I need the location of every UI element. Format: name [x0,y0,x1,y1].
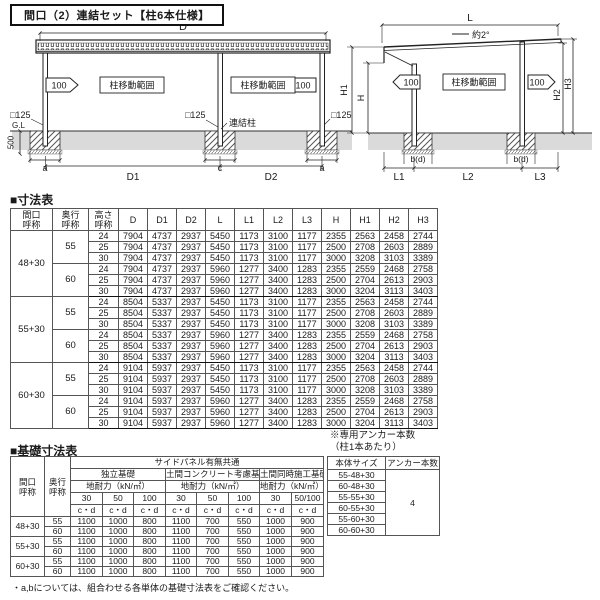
slope-label: 約2° [472,29,490,40]
dim-table-row: 48+3055247904473729375450117331001177235… [11,231,438,242]
dim-l2-label: L2 [462,172,474,183]
dim-value-cell: 3103 [380,253,409,264]
footing-dim-label: b(d) [410,154,425,164]
dim-l-label: L [467,13,473,24]
dim-value-cell: 7904 [119,231,148,242]
dim-value-cell: 2468 [380,396,409,407]
base-value-cell: 700 [197,567,229,577]
dim-value-cell: 7904 [119,253,148,264]
dim-value-cell: 3100 [264,231,293,242]
dimension-table: 間口 呼称 奥行 呼称 高さ 呼称 D D1 D2 L L1 L2 L3 H H… [10,208,438,429]
dim-value-cell: 25 [89,242,119,253]
dim-value-cell: 1177 [293,374,322,385]
joint-post-label: 連結柱 [229,117,256,128]
footing-dim-label: b(d) [513,154,528,164]
post-range-arrow-side-left: 100 [393,75,420,89]
dim-value-cell: 1173 [235,385,264,396]
base-value-cell: 900 [292,567,324,577]
base-value-cell: 1000 [260,547,292,557]
dim-value-cell: 25 [89,407,119,418]
dim-value-cell: 2613 [380,275,409,286]
anchor-table-row: 55-48+304 [328,470,440,481]
dim-value-cell: 3100 [264,253,293,264]
base-value-cell: 1100 [166,557,197,567]
dim-value-cell: 2500 [322,275,351,286]
base-value-cell: 1100 [71,537,103,547]
base-value-cell: 900 [292,527,324,537]
post-range-arrow-side-right: 100 [528,75,555,89]
roof-front [36,40,330,53]
dim-value-cell: 2468 [380,264,409,275]
base-value-cell: 1100 [71,567,103,577]
col-header: H3 [409,209,438,231]
dim-value-cell: 3400 [264,396,293,407]
roof-slope-callout: 約2° [452,29,490,40]
post-size-right: □125 [331,110,351,120]
col-header: 土間コンクリート考慮基礎 [166,469,260,481]
base-value-cell: 900 [292,547,324,557]
col-header: 独立基礎 [71,469,166,481]
col-header: L2 [264,209,293,231]
body-size-cell: 60-60+30 [328,525,386,536]
dim-h1-label: H1 [339,84,349,96]
dim-value-cell: 2903 [409,341,438,352]
dim-value-cell: 2468 [380,330,409,341]
cd-header: c・d [260,505,292,517]
okuyuki-cell: 55 [53,363,89,396]
dim-value-cell: 2744 [409,297,438,308]
okuyuki-cell: 60 [45,527,71,537]
dim-value-cell: 5937 [148,374,177,385]
okuyuki-cell: 55 [45,557,71,567]
dim-value-cell: 2758 [409,396,438,407]
footnote: ・a,bについては、組合わせる各単体の基礎寸法表をご確認ください。 [12,581,294,594]
dim-value-cell: 1177 [293,363,322,374]
col-header: H2 [380,209,409,231]
dim-l: L [382,13,558,43]
dim-value-cell: 1283 [293,418,322,429]
footing-base-left [28,150,62,154]
dim-value-cell: 4737 [148,264,177,275]
dim-value-cell: 5337 [148,319,177,330]
dim-value-cell: 4737 [148,242,177,253]
dim-value-cell: 2937 [177,242,206,253]
dim-value-cell: 1277 [235,396,264,407]
dim-value-cell: 30 [89,319,119,330]
base-value-cell: 800 [134,527,166,537]
dim-value-cell: 2603 [380,242,409,253]
base-value-cell: 700 [197,517,229,527]
dim-value-cell: 2559 [351,396,380,407]
dim-value-cell: 5960 [206,275,235,286]
dim-value-cell: 5450 [206,385,235,396]
dim-value-cell: 3000 [322,352,351,363]
col-header: 本体サイズ [328,457,386,470]
base-value-cell: 1000 [103,517,134,527]
col-header: 30 [260,493,292,505]
dim-h1: H1 [339,47,384,133]
dim-value-cell: 24 [89,231,119,242]
dim-value-cell: 2937 [177,275,206,286]
dim-value-cell: 3403 [409,286,438,297]
dim-table-section-title: ■寸法表 [10,191,53,208]
dim-value-cell: 3400 [264,352,293,363]
dim-value-cell: 8504 [119,341,148,352]
okuyuki-cell: 60 [45,567,71,577]
dim-value-cell: 9104 [119,396,148,407]
dim-value-cell: 2500 [322,341,351,352]
col-header: 50 [103,493,134,505]
footing-dim-label: a [42,163,47,173]
dim-value-cell: 5337 [148,352,177,363]
page-title: 間口（2）連結セット【柱6本仕様】 [10,4,224,26]
dim-value-cell: 3000 [322,253,351,264]
dim-value-cell: 5337 [148,297,177,308]
dim-value-cell: 4737 [148,253,177,264]
dim-h3-label: H3 [563,78,573,90]
dim-value-cell: 2563 [351,363,380,374]
range-label: 柱移動範囲 [109,80,154,91]
base-value-cell: 1000 [103,527,134,537]
dim-value-cell: 3000 [322,418,351,429]
arrow-label: 100 [529,78,544,88]
cd-header: c・d [229,505,260,517]
body-size-cell: 55-60+30 [328,514,386,525]
dim-value-cell: 2758 [409,264,438,275]
dim-value-cell: 2355 [322,396,351,407]
dim-value-cell: 3103 [380,385,409,396]
dim-value-cell: 3100 [264,319,293,330]
base-value-cell: 700 [197,557,229,567]
col-header: D [119,209,148,231]
dim-value-cell: 9104 [119,385,148,396]
dim-value-cell: 1173 [235,242,264,253]
dim-table-row: 55+3055248504533729375450117331001177235… [11,297,438,308]
dim-value-cell: 1173 [235,253,264,264]
dim-value-cell: 2704 [351,341,380,352]
dim-value-cell: 3400 [264,286,293,297]
base-value-cell: 700 [197,547,229,557]
dim-value-cell: 5450 [206,242,235,253]
dim-value-cell: 30 [89,418,119,429]
dim-value-cell: 2458 [380,363,409,374]
base-table-row: 601100100080011007005501000900 [11,527,324,537]
dim-value-cell: 1283 [293,396,322,407]
post-size-labels-front: □125 □125 □125 [10,110,351,127]
dim-value-cell: 3113 [380,286,409,297]
maguchi-cell: 60+30 [11,557,45,577]
post-front-left [43,53,48,146]
dim-l1-label: L1 [393,172,405,183]
dim-value-cell: 5937 [148,418,177,429]
dim-h: H [356,63,384,133]
okuyuki-cell: 55 [53,297,89,330]
dim-value-cell: 3103 [380,319,409,330]
dim-value-cell: 1173 [235,374,264,385]
range-box-front-right: 柱移動範囲 [231,77,295,93]
dim-value-cell: 3389 [409,319,438,330]
dim-value-cell: 8504 [119,308,148,319]
dim-value-cell: 1277 [235,286,264,297]
dim-value-cell: 9104 [119,374,148,385]
dim-value-cell: 1283 [293,264,322,275]
col-header: H1 [351,209,380,231]
range-label: 柱移動範囲 [451,77,496,88]
dim-value-cell: 9104 [119,363,148,374]
body-size-cell: 60-48+30 [328,481,386,492]
dim-value-cell: 2744 [409,363,438,374]
dim-value-cell: 2937 [177,341,206,352]
dim-d1-label: D1 [127,172,140,183]
dim-value-cell: 2559 [351,330,380,341]
col-header: アンカー本数 [386,457,440,470]
dim-value-cell: 24 [89,297,119,308]
base-value-cell: 800 [134,547,166,557]
arrow-label: 100 [295,81,310,91]
okuyuki-cell: 60 [45,547,71,557]
dim-value-cell: 1283 [293,341,322,352]
dim-value-cell: 8504 [119,330,148,341]
dim-value-cell: 2613 [380,407,409,418]
cd-header: c・d [71,505,103,517]
range-box-side: 柱移動範囲 [443,74,505,90]
dim-value-cell: 5937 [148,396,177,407]
base-value-cell: 700 [197,527,229,537]
dim-value-cell: 1283 [293,330,322,341]
body-size-cell: 55-55+30 [328,492,386,503]
footing-base-center [203,150,237,154]
dim-value-cell: 3204 [351,418,380,429]
dim-value-cell: 3208 [351,253,380,264]
col-header: L [206,209,235,231]
dim-value-cell: 2355 [322,363,351,374]
dim-value-cell: 2937 [177,374,206,385]
base-value-cell: 1100 [166,567,197,577]
dim-value-cell: 2458 [380,231,409,242]
dim-value-cell: 3204 [351,352,380,363]
anchor-count-note: ※専用アンカー本数 （柱1本あたり） [330,430,415,454]
dim-value-cell: 1277 [235,275,264,286]
dim-value-cell: 2708 [351,242,380,253]
base-value-cell: 1000 [260,567,292,577]
dim-value-cell: 2355 [322,264,351,275]
base-value-cell: 900 [292,537,324,547]
dim-value-cell: 1277 [235,341,264,352]
arrow-label: 100 [51,81,66,91]
maguchi-cell: 55+30 [11,537,45,557]
dim-value-cell: 24 [89,264,119,275]
dim-value-cell: 1177 [293,242,322,253]
dim-footing-a-left: a [30,151,60,173]
dim-value-cell: 3100 [264,363,293,374]
base-value-cell: 1100 [71,517,103,527]
dim-value-cell: 2889 [409,242,438,253]
okuyuki-cell: 60 [53,396,89,429]
dim-value-cell: 7904 [119,275,148,286]
dim-value-cell: 4737 [148,286,177,297]
base-value-cell: 1000 [103,567,134,577]
base-value-cell: 700 [197,537,229,547]
dim-value-cell: 2708 [351,374,380,385]
col-header: L1 [235,209,264,231]
anchor-count-table: 本体サイズ アンカー本数 55-48+30460-48+3055-55+3060… [327,456,440,536]
base-value-cell: 1100 [166,547,197,557]
col-header: 高さ 呼称 [89,209,119,231]
dim-value-cell: 2758 [409,330,438,341]
dim-value-cell: 2937 [177,407,206,418]
dim-table-row: 60+3055249104593729375450117331001177235… [11,363,438,374]
col-header: 地耐力（kN/㎡） [166,481,260,493]
dim-value-cell: 2937 [177,396,206,407]
dim-value-cell: 1177 [293,253,322,264]
foundation-table: 間口 呼称 奥行 呼称 サイドパネル有無共通 独立基礎 土間コンクリート考慮基礎… [10,456,324,577]
col-header: 30 [71,493,103,505]
dim-value-cell: 2500 [322,308,351,319]
dim-value-cell: 5450 [206,363,235,374]
dim-value-cell: 2708 [351,308,380,319]
dim-value-cell: 1177 [293,231,322,242]
dim-value-cell: 5960 [206,418,235,429]
base-header-row: 間口 呼称 奥行 呼称 サイドパネル有無共通 [11,457,324,469]
col-header: 奥行 呼称 [45,457,71,517]
dim-value-cell: 5450 [206,253,235,264]
dim-value-cell: 3113 [380,352,409,363]
anchor-header-row: 本体サイズ アンカー本数 [328,457,440,470]
dim-value-cell: 2355 [322,297,351,308]
base-value-cell: 1100 [71,527,103,537]
dim-value-cell: 8504 [119,319,148,330]
base-value-cell: 550 [229,547,260,557]
dim-value-cell: 5960 [206,264,235,275]
col-header: D1 [148,209,177,231]
post-range-arrow-front-left: 100 [46,78,78,92]
dim-value-cell: 1177 [293,385,322,396]
dim-value-cell: 1173 [235,308,264,319]
dim-value-cell: 2889 [409,308,438,319]
dim-value-cell: 2937 [177,308,206,319]
base-value-cell: 800 [134,517,166,527]
dim-value-cell: 9104 [119,407,148,418]
joint-post-callout: 連結柱 [221,117,256,129]
dim-value-cell: 2355 [322,231,351,242]
base-value-cell: 550 [229,537,260,547]
ground-strip-front [12,131,352,150]
dim-value-cell: 5450 [206,231,235,242]
dim-value-cell: 2744 [409,231,438,242]
dim-value-cell: 5960 [206,341,235,352]
dim-value-cell: 2500 [322,242,351,253]
dim-table-row: 6024850453372937596012773400128323552559… [11,330,438,341]
dim-value-cell: 30 [89,286,119,297]
dim-value-cell: 2937 [177,264,206,275]
okuyuki-cell: 55 [45,537,71,547]
dim-value-cell: 3100 [264,374,293,385]
base-table-row: 601100100080011007005501000900 [11,547,324,557]
ground-level-label: G.L [12,121,25,130]
dim-value-cell: 2704 [351,275,380,286]
col-header: 地耐力（kN/㎡） [71,481,166,493]
dim-value-cell: 2613 [380,341,409,352]
col-header: L3 [293,209,322,231]
dim-table-header-row: 間口 呼称 奥行 呼称 高さ 呼称 D D1 D2 L L1 L2 L3 H H… [11,209,438,231]
col-header: サイドパネル有無共通 [71,457,324,469]
dim-value-cell: 2937 [177,297,206,308]
dim-value-cell: 1173 [235,319,264,330]
dim-value-cell: 2937 [177,286,206,297]
dim-value-cell: 25 [89,275,119,286]
base-value-cell: 1100 [166,517,197,527]
dim-value-cell: 2937 [177,385,206,396]
base-value-cell: 1000 [260,557,292,567]
base-value-cell: 1100 [71,547,103,557]
dim-value-cell: 2563 [351,231,380,242]
dim-value-cell: 2903 [409,407,438,418]
dim-value-cell: 3000 [322,319,351,330]
anchor-count-cell: 4 [386,470,440,536]
dim-value-cell: 3403 [409,418,438,429]
base-value-cell: 1100 [166,527,197,537]
post-front-right [320,53,325,146]
dim-d1-d2: D1 D2 [46,156,323,183]
dim-value-cell: 1177 [293,297,322,308]
dim-value-cell: 3113 [380,418,409,429]
post-side-right [520,42,525,146]
ground-strip-side [368,133,592,150]
base-table-row: 48+30551100100080011007005501000900 [11,517,324,527]
front-elevation-view: D 100 100 柱移動範囲 柱移動範囲 □125 □125 □125 連結 [7,21,353,183]
base-value-cell: 1000 [260,517,292,527]
dim-value-cell: 7904 [119,264,148,275]
dim-value-cell: 1283 [293,286,322,297]
dim-value-cell: 2937 [177,319,206,330]
dim-value-cell: 2937 [177,418,206,429]
base-value-cell: 900 [292,557,324,567]
maguchi-cell: 55+30 [11,297,53,363]
dim-value-cell: 4737 [148,231,177,242]
dim-value-cell: 5937 [148,363,177,374]
dim-value-cell: 30 [89,385,119,396]
dim-value-cell: 1277 [235,418,264,429]
dim-value-cell: 5960 [206,352,235,363]
dim-value-cell: 3100 [264,308,293,319]
dim-value-cell: 1173 [235,297,264,308]
arrow-label: 100 [403,78,418,88]
dim-value-cell: 5960 [206,396,235,407]
dim-value-cell: 2603 [380,308,409,319]
dim-value-cell: 2937 [177,352,206,363]
col-header: 50 [197,493,229,505]
dim-value-cell: 3400 [264,407,293,418]
base-value-cell: 900 [292,517,324,527]
base-value-cell: 800 [134,557,166,567]
dim-value-cell: 1277 [235,330,264,341]
base-value-cell: 1000 [260,527,292,537]
dim-value-cell: 5960 [206,286,235,297]
dim-value-cell: 5337 [148,330,177,341]
dim-value-cell: 25 [89,374,119,385]
dim-value-cell: 5450 [206,319,235,330]
dim-value-cell: 24 [89,363,119,374]
base-value-cell: 550 [229,557,260,567]
dim-value-cell: 2500 [322,407,351,418]
dim-value-cell: 8504 [119,352,148,363]
base-value-cell: 1000 [103,547,134,557]
dim-table-row: 6024910459372937596012773400128323552559… [11,396,438,407]
dim-value-cell: 5960 [206,330,235,341]
dim-value-cell: 2937 [177,330,206,341]
dim-value-cell: 1283 [293,275,322,286]
dim-value-cell: 1177 [293,308,322,319]
